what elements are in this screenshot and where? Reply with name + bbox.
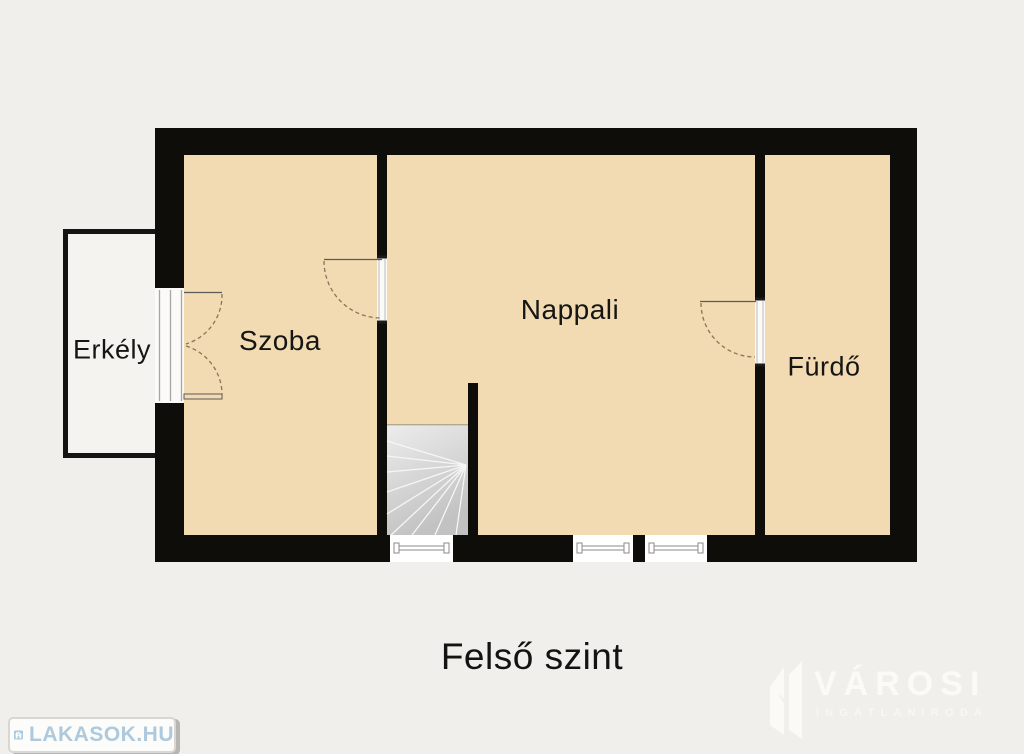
door-opening-szoba [377, 256, 387, 324]
varosi-subtitle: INGATLANIRODA [816, 707, 988, 719]
floor-title: Felső szint [441, 636, 623, 678]
varosi-watermark: VÁROSI INGATLANIRODA [758, 655, 1018, 750]
window-bottom-3 [645, 535, 707, 562]
lakasok-logo-text: LAKASOK.HU [29, 723, 174, 747]
staircase [387, 424, 468, 535]
balcony-door-opening [155, 288, 184, 403]
door-opening-furdo [755, 298, 765, 367]
room-label-furdo: Fürdő [787, 352, 860, 383]
window-bottom-2 [573, 535, 633, 562]
lakasok-logo: LAKASOK.HU [8, 717, 176, 753]
window-bottom-1 [390, 535, 453, 562]
varosi-name: VÁROSI [814, 665, 986, 704]
floor-plan-page: Erkély Szoba Nappali Fürdő Felső szint L… [0, 0, 1024, 754]
house-icon [14, 722, 23, 748]
room-label-szoba: Szoba [239, 325, 321, 357]
buildings-icon [758, 655, 808, 750]
interior-wall-szoba-nappali [377, 155, 387, 562]
room-label-erkely: Erkély [73, 335, 151, 366]
room-label-nappali: Nappali [521, 294, 619, 326]
interior-wall-stairwell [468, 383, 478, 562]
